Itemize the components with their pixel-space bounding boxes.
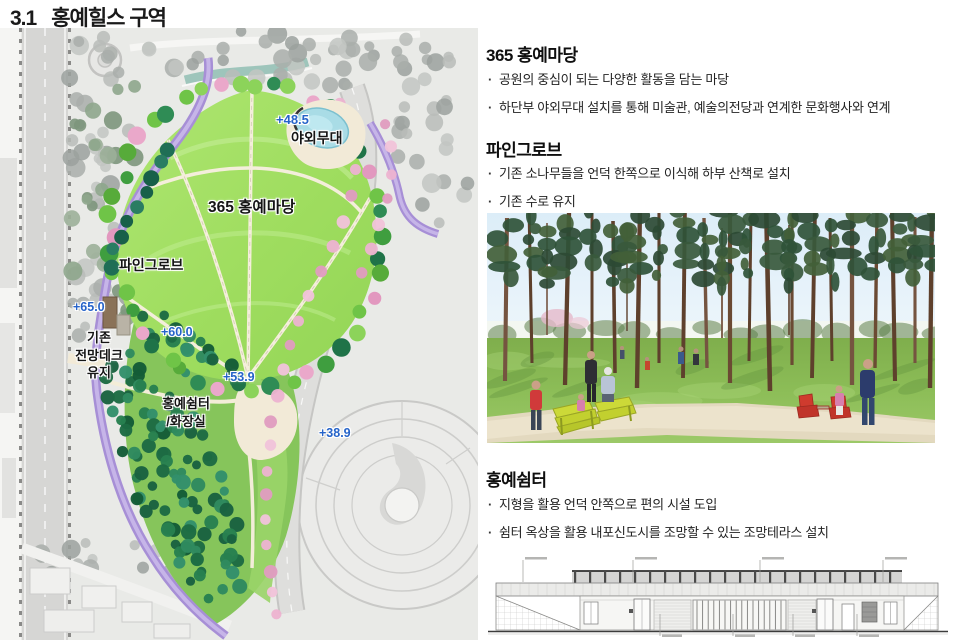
bullet-item: 기존 수로 유지 xyxy=(486,193,956,212)
section-heading-shelter: 홍예쉼터 xyxy=(486,466,547,491)
elevation-label-65: +65.0 xyxy=(73,300,105,316)
elevation-label-60: +60.0 xyxy=(161,325,193,341)
deck-keep-label: 기존 전망데크 유지 xyxy=(66,329,132,382)
section-heading-pinegrove: 파인그로브 xyxy=(486,136,562,161)
section-bullets-shelter: 지형을 활용 언덕 안쪽으로 편의 시설 도입 쉼터 옥상을 활용 내포신도시를… xyxy=(486,496,956,552)
pine-grove-photo xyxy=(487,213,935,443)
bullet-item: 기존 소나무들을 언덕 한쪽으로 이식해 하부 산책로 설치 xyxy=(486,165,956,184)
description-panel: 365 홍예마당 공원의 중심이 되는 다양한 활동을 담는 마당 하단부 야외… xyxy=(486,0,956,640)
shelter-elevation-drawing xyxy=(486,552,950,638)
site-plan-map: +48.5 야외무대 365 홍예마당 파인그로브 +65.0 기존 전망데크 … xyxy=(0,28,478,640)
section-title-text: 홍예힐스 구역 xyxy=(51,7,166,30)
bullet-item: 하단부 야외무대 설치를 통해 미술관, 예술의전당과 연계한 문화행사와 연계 xyxy=(486,99,956,118)
pine-grove-label: 파인그로브 xyxy=(119,257,183,275)
elevation-label-48-5: +48.5 xyxy=(276,112,309,128)
section-number: 3.1 xyxy=(10,7,36,30)
stage-label: 야외무대 xyxy=(291,130,343,148)
elevation-label-53-9: +53.9 xyxy=(223,370,255,386)
section-heading-madang: 365 홍예마당 xyxy=(486,41,578,66)
elevation-label-38-9: +38.9 xyxy=(319,426,351,442)
bullet-item: 쉼터 옥상을 활용 내포신도시를 조망할 수 있는 조망테라스 설치 xyxy=(486,524,956,543)
bullet-item: 지형을 활용 언덕 안쪽으로 편의 시설 도입 xyxy=(486,496,956,515)
bullet-item: 공원의 중심이 되는 다양한 활동을 담는 마당 xyxy=(486,71,956,90)
madang-label: 365 홍예마당 xyxy=(208,198,295,217)
shelter-label: 홍예쉼터 /화장실 xyxy=(150,395,222,430)
section-bullets-madang: 공원의 중심이 되는 다양한 활동을 담는 마당 하단부 야외무대 설치를 통해… xyxy=(486,71,956,127)
